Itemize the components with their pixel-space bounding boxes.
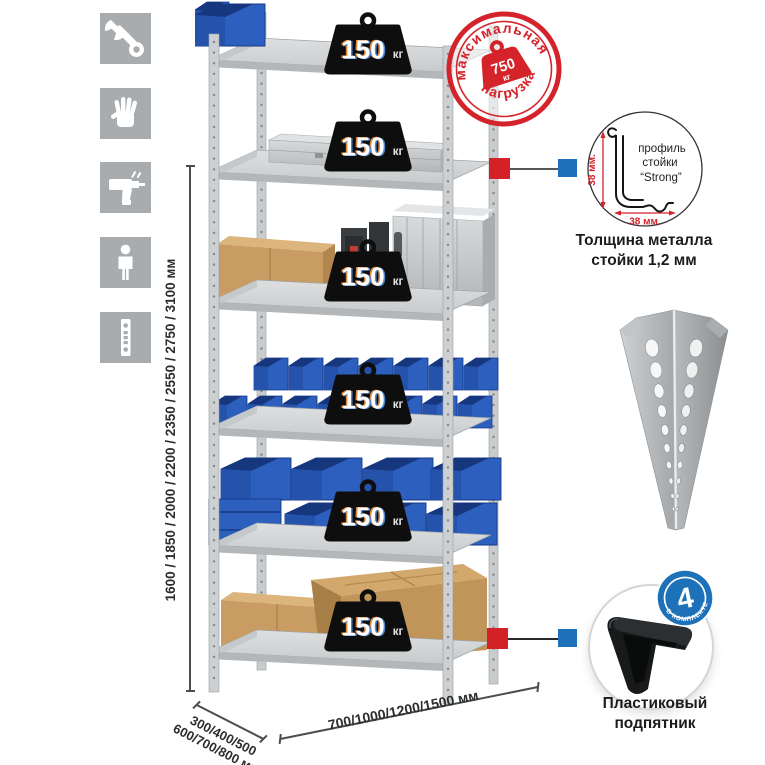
svg-text:38 мм.: 38 мм.: [629, 217, 661, 228]
svg-text:“Strong”: “Strong”: [640, 172, 682, 184]
gloves-tile: [100, 88, 151, 139]
product-infographic: 1600 / 1850 / 2000 / 2200 / 2350 / 2550 …: [0, 0, 765, 765]
wrench-tile: [100, 13, 151, 64]
svg-text:150: 150: [341, 34, 384, 64]
height-dimension-line: [189, 167, 191, 691]
svg-text:кг: кг: [393, 49, 404, 61]
callout-line-top: [509, 168, 559, 170]
wrench-icon: [100, 13, 151, 64]
callout-line-bottom: [508, 638, 559, 640]
shelf-load-badge: 150 150 150 кг: [327, 15, 409, 73]
angle-post-image: [596, 300, 751, 535]
person-tile: [100, 237, 151, 288]
gloves-icon: [100, 88, 151, 139]
post-profile-detail: 38 мм. 38 мм. профиль стойки “Strong”: [583, 107, 707, 231]
callout-red-marker-bottom: [487, 628, 508, 649]
max-load-stamp: максимальная нагрузка 750 кг: [441, 7, 567, 131]
post-strip-icon: [100, 312, 151, 363]
person-icon: [100, 237, 151, 288]
post-strip-tile: [100, 312, 151, 363]
callout-red-marker-top: [489, 158, 510, 179]
height-dimension-label: 1600 / 1850 / 2000 / 2200 / 2350 / 2550 …: [163, 172, 181, 688]
profile-caption: Толщина металла стойки 1,2 мм: [564, 231, 724, 271]
callout-blue-marker-top: [558, 159, 577, 177]
svg-text:38 мм.: 38 мм.: [587, 154, 598, 186]
foot-caption: Пластиковый подпятник: [575, 694, 735, 734]
drill-tile: [100, 162, 151, 213]
svg-text:стойки: стойки: [642, 157, 677, 169]
callout-blue-marker-bottom: [558, 629, 577, 647]
svg-text:профиль: профиль: [638, 143, 686, 155]
drill-icon: [100, 162, 151, 213]
kit-count-badge: 4 в комплекте: [655, 568, 715, 628]
